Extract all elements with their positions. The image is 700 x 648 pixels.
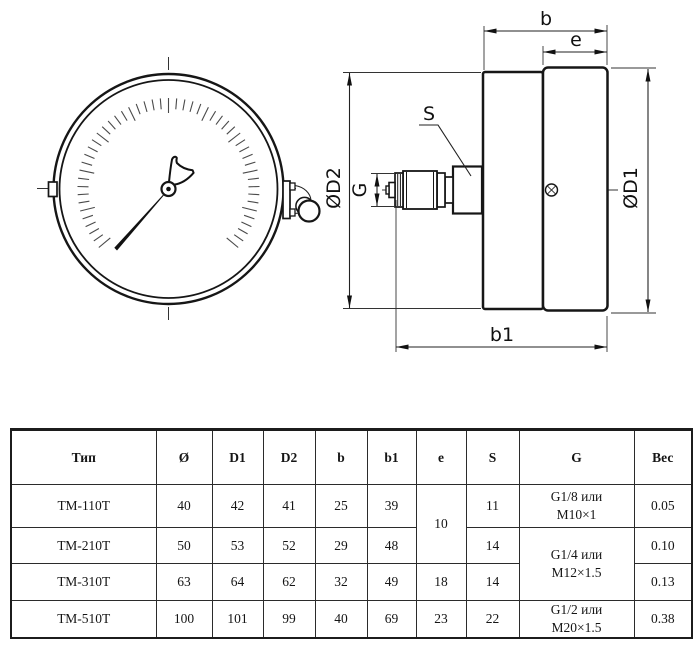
col-header-type: Тип xyxy=(11,430,156,485)
col-header-g: G xyxy=(519,430,634,485)
back-connection-clip xyxy=(283,181,320,222)
cell-diameter: 50 xyxy=(156,528,212,564)
cell-g: G1/2 или М20×1.5 xyxy=(519,601,634,638)
cell-b1: 69 xyxy=(367,601,416,638)
cell-b: 29 xyxy=(315,528,367,564)
case-body xyxy=(483,72,543,309)
cell-d2: 62 xyxy=(263,564,315,601)
needle-hub-dot xyxy=(166,187,171,192)
seal-ring-front xyxy=(299,201,320,222)
g-line-1: G1/4 или xyxy=(522,546,632,564)
g-line-2: М12×1.5 xyxy=(522,564,632,582)
table-row: ТМ-510Т 100 101 99 40 69 23 22 G1/2 или … xyxy=(11,601,692,638)
left-lug xyxy=(49,182,58,197)
cell-b: 32 xyxy=(315,564,367,601)
cell-b: 25 xyxy=(315,485,367,528)
cell-d2: 41 xyxy=(263,485,315,528)
cell-diameter: 100 xyxy=(156,601,212,638)
col-header-b: b xyxy=(315,430,367,485)
cell-s: 14 xyxy=(466,528,519,564)
col-header-diameter: Ø xyxy=(156,430,212,485)
col-header-d2: D2 xyxy=(263,430,315,485)
header-row: Тип Ø D1 D2 b b1 e S G Вес xyxy=(11,430,692,485)
g-line-2: М10×1 xyxy=(522,506,632,524)
cell-g: G1/8 или М10×1 xyxy=(519,485,634,528)
cell-diameter: 40 xyxy=(156,485,212,528)
wrench-boss xyxy=(453,167,482,214)
cell-type: ТМ-110Т xyxy=(11,485,156,528)
cell-e-merged: 10 xyxy=(416,485,466,564)
col-header-b1: b1 xyxy=(367,430,416,485)
cell-weight: 0.05 xyxy=(634,485,692,528)
cell-e: 18 xyxy=(416,564,466,601)
g-line-2: М20×1.5 xyxy=(522,619,632,637)
cell-b1: 48 xyxy=(367,528,416,564)
cell-s: 14 xyxy=(466,564,519,601)
cell-s: 11 xyxy=(466,485,519,528)
col-header-d1: D1 xyxy=(212,430,263,485)
cell-d1: 101 xyxy=(212,601,263,638)
dim-label-od1: ØD1 xyxy=(620,167,642,209)
col-header-weight: Вес xyxy=(634,430,692,485)
dim-label-b: b xyxy=(540,8,552,30)
cell-type: ТМ-310Т xyxy=(11,564,156,601)
side-view xyxy=(382,68,618,311)
cell-b1: 49 xyxy=(367,564,416,601)
cell-type: ТМ-510Т xyxy=(11,601,156,638)
cell-d2: 99 xyxy=(263,601,315,638)
cell-d1: 53 xyxy=(212,528,263,564)
table-row: ТМ-110Т 40 42 41 25 39 10 11 G1/8 или М1… xyxy=(11,485,692,528)
dim-label-s: S xyxy=(423,103,435,125)
stub-tip xyxy=(386,186,389,194)
cell-weight: 0.10 xyxy=(634,528,692,564)
g-line-1: G1/2 или xyxy=(522,601,632,619)
gauge-drawing: b e b1 ØD2 ØD1 G S xyxy=(0,0,700,422)
cell-d1: 64 xyxy=(212,564,263,601)
cell-b: 40 xyxy=(315,601,367,638)
cell-s: 22 xyxy=(466,601,519,638)
dim-label-g: G xyxy=(349,183,371,198)
dim-label-b1: b1 xyxy=(490,324,514,346)
case-screw xyxy=(546,184,558,196)
table-row: ТМ-210Т 50 53 52 29 48 14 G1/4 или М12×1… xyxy=(11,528,692,564)
front-view xyxy=(37,57,320,321)
col-header-s: S xyxy=(466,430,519,485)
technical-drawing-page: b e b1 ØD2 ØD1 G S xyxy=(0,0,700,648)
dim-label-od2: ØD2 xyxy=(323,167,345,209)
cell-weight: 0.38 xyxy=(634,601,692,638)
thread-section xyxy=(403,171,437,209)
cell-b1: 39 xyxy=(367,485,416,528)
cell-g-merged: G1/4 или М12×1.5 xyxy=(519,528,634,601)
g-line-1: G1/8 или xyxy=(522,488,632,506)
col-header-e: e xyxy=(416,430,466,485)
dim-label-e: e xyxy=(570,29,582,51)
cell-weight: 0.13 xyxy=(634,564,692,601)
cell-e: 23 xyxy=(416,601,466,638)
cell-d2: 52 xyxy=(263,528,315,564)
cell-type: ТМ-210Т xyxy=(11,528,156,564)
cell-diameter: 63 xyxy=(156,564,212,601)
thread-stub xyxy=(386,167,482,214)
spec-table: Тип Ø D1 D2 b b1 e S G Вес ТМ-110Т 40 42… xyxy=(10,428,693,639)
cell-d1: 42 xyxy=(212,485,263,528)
